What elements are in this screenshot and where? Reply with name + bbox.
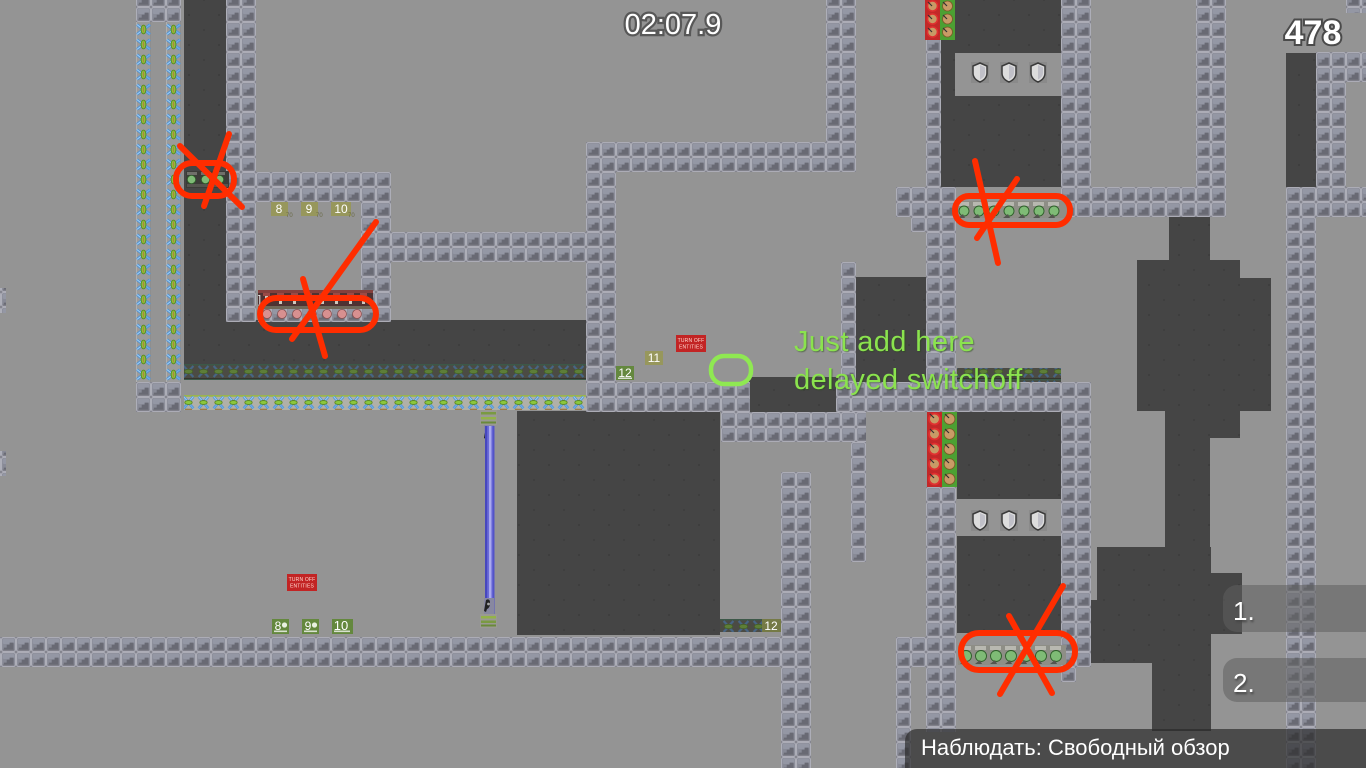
svg-text:10: 10 bbox=[334, 202, 348, 216]
svg-text:ENTITIES: ENTITIES bbox=[290, 584, 315, 590]
svg-text:Just add here: Just add here bbox=[794, 326, 975, 358]
svg-text:70: 70 bbox=[286, 213, 293, 219]
svg-text:TURN OFF: TURN OFF bbox=[289, 577, 316, 583]
svg-text:2.: 2. bbox=[1233, 668, 1255, 698]
svg-text:70: 70 bbox=[316, 213, 323, 219]
svg-text:1.: 1. bbox=[1233, 596, 1255, 626]
svg-text:delayed switchoff: delayed switchoff bbox=[794, 364, 1023, 396]
svg-text:02:07.9: 02:07.9 bbox=[625, 9, 722, 41]
svg-text:TURN OFF: TURN OFF bbox=[678, 338, 705, 344]
svg-text:12: 12 bbox=[764, 619, 778, 633]
svg-text:Наблюдать: Свободный обзор: Наблюдать: Свободный обзор bbox=[921, 735, 1230, 760]
svg-text:478: 478 bbox=[1285, 14, 1342, 52]
svg-text:9: 9 bbox=[306, 202, 313, 216]
svg-text:11: 11 bbox=[648, 351, 661, 365]
svg-text:8: 8 bbox=[276, 202, 283, 216]
svg-text:ENTITIES: ENTITIES bbox=[679, 345, 704, 351]
svg-text:70: 70 bbox=[348, 213, 355, 219]
